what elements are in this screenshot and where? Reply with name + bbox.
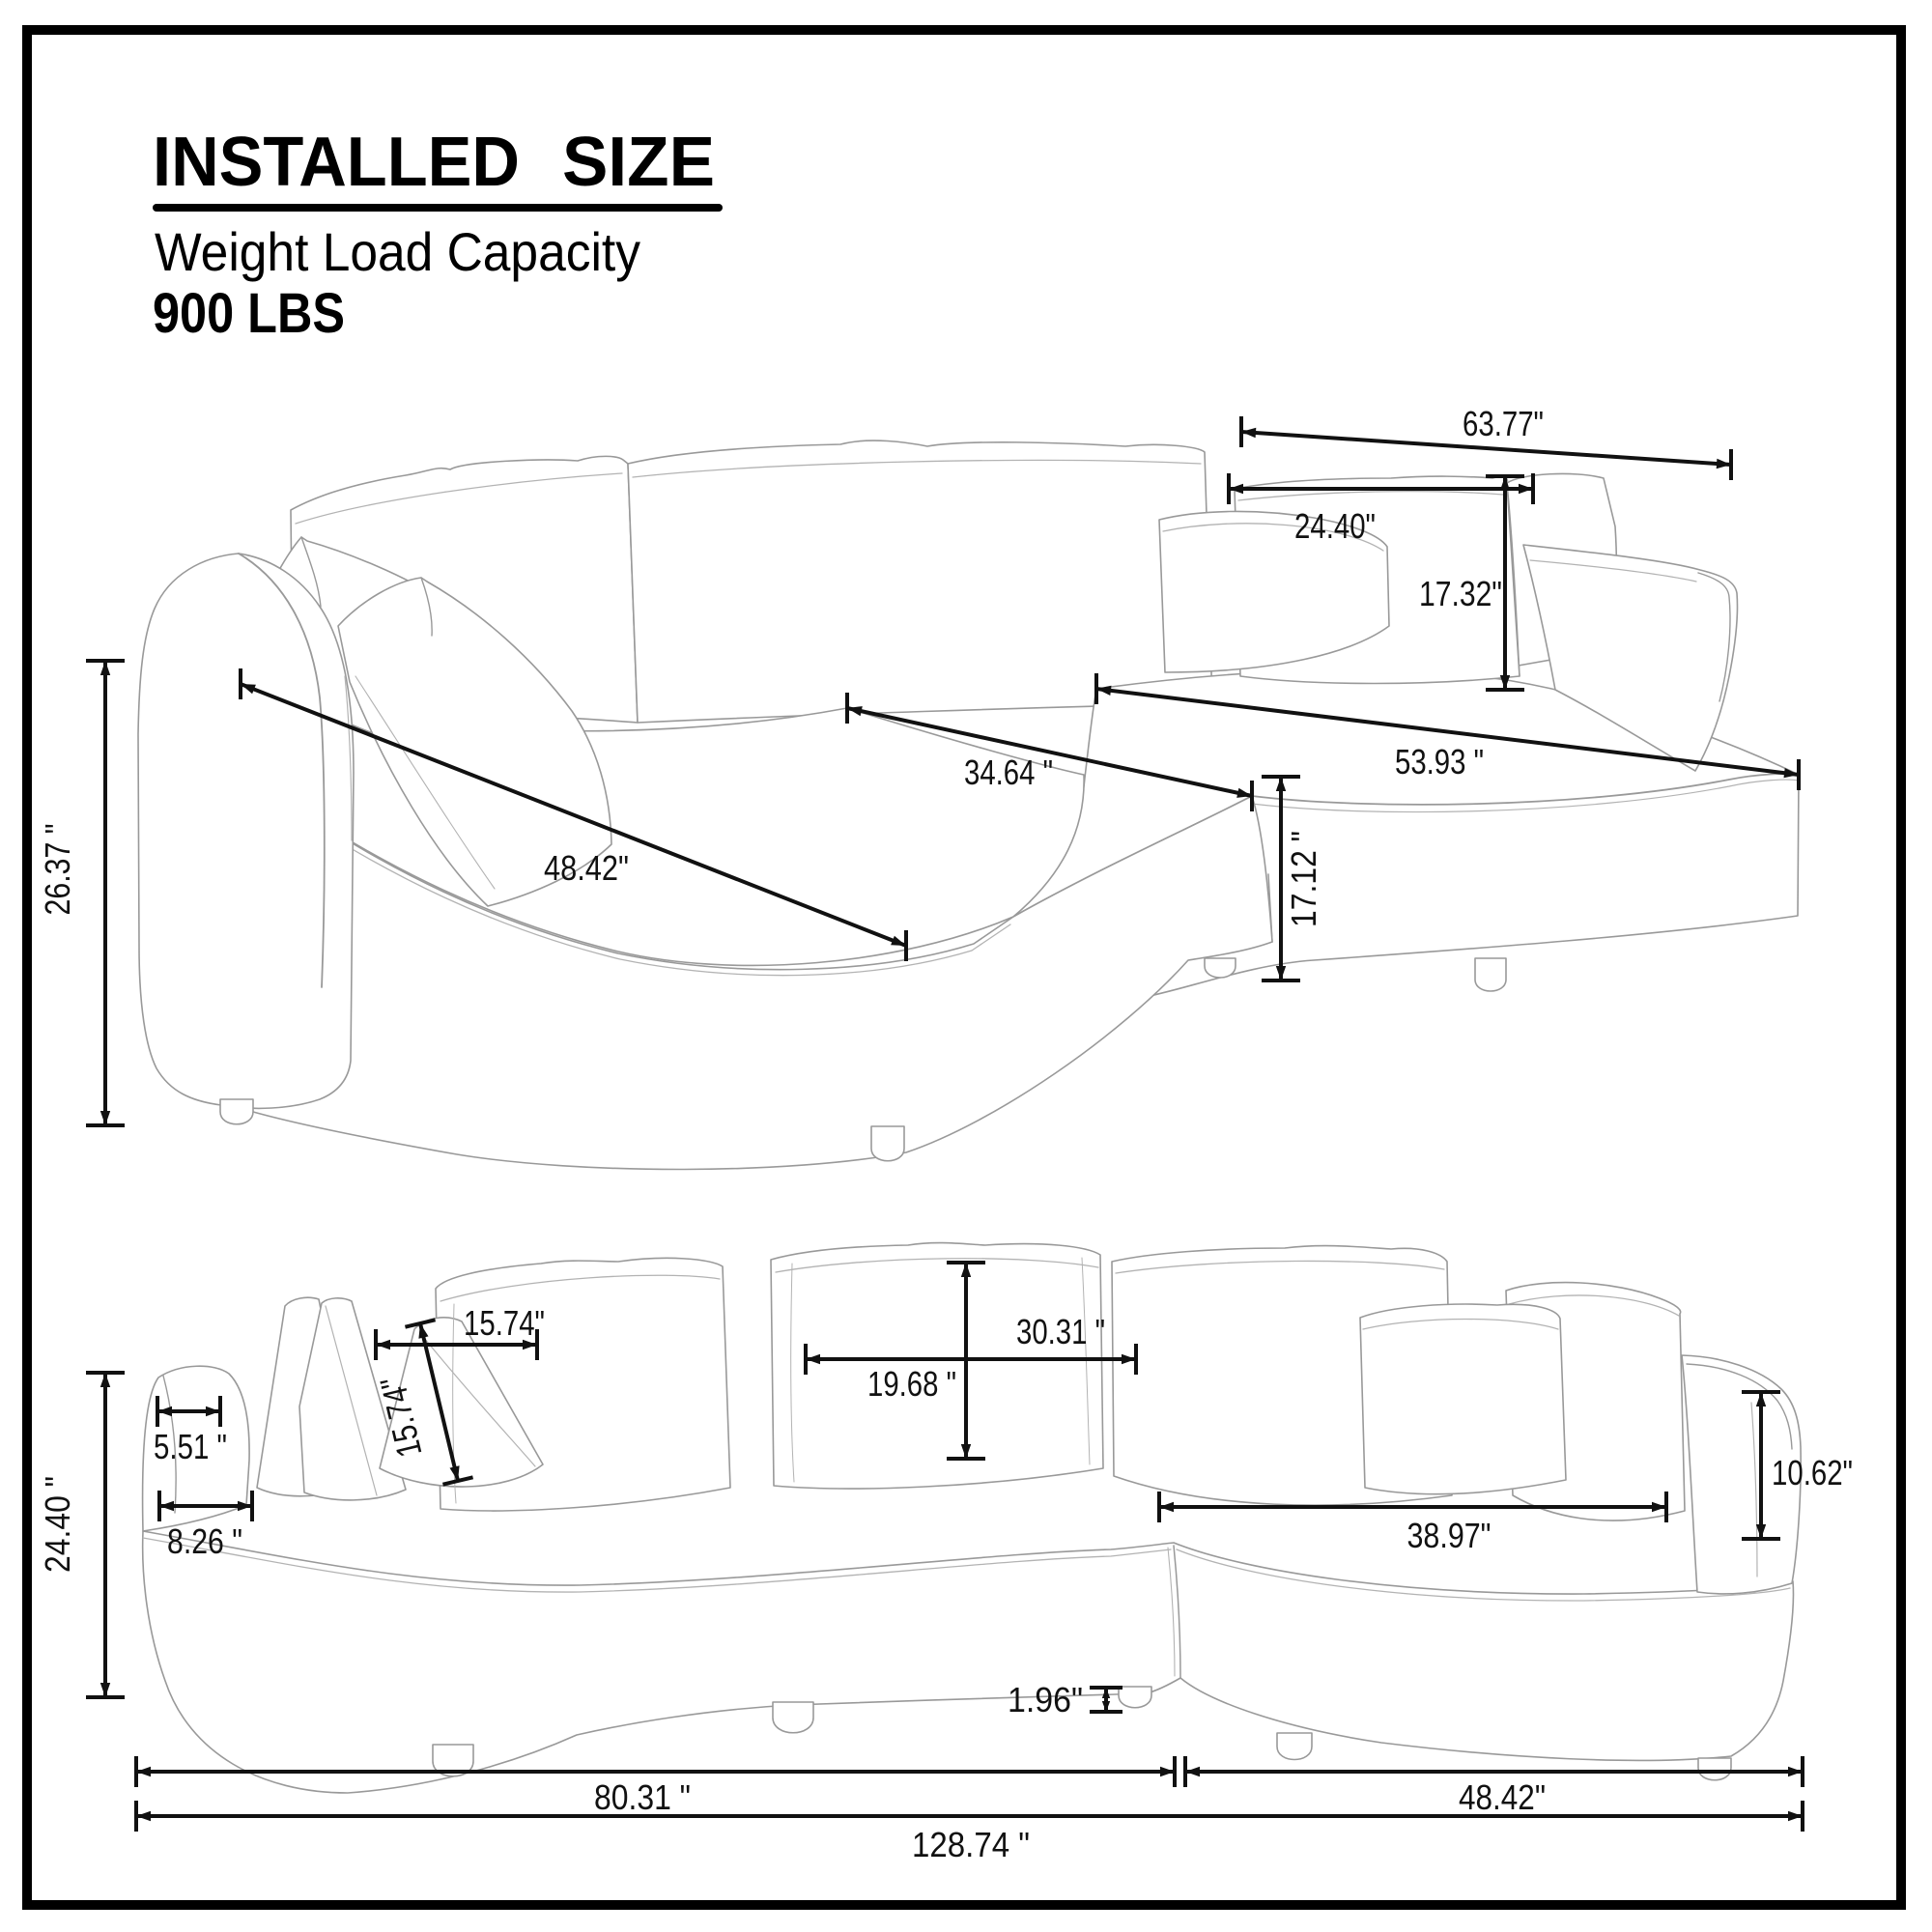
svg-text:30.31 ": 30.31 " <box>1016 1312 1105 1351</box>
svg-text:15.74": 15.74" <box>464 1303 545 1343</box>
svg-text:17.32": 17.32" <box>1419 574 1502 613</box>
svg-text:34.64 ": 34.64 " <box>964 753 1053 792</box>
svg-text:5.51 ": 5.51 " <box>154 1427 227 1466</box>
svg-text:8.26 ": 8.26 " <box>167 1521 242 1561</box>
svg-text:INSTALLED: INSTALLED <box>153 124 520 201</box>
svg-text:48.42": 48.42" <box>1459 1777 1546 1817</box>
svg-text:19.68 ": 19.68 " <box>867 1364 956 1404</box>
svg-text:63.77": 63.77" <box>1463 404 1544 443</box>
svg-text:24.40": 24.40" <box>1294 506 1376 546</box>
svg-text:10.62": 10.62" <box>1772 1453 1853 1492</box>
svg-text:17.12 ": 17.12 " <box>1284 831 1323 927</box>
svg-text:38.97": 38.97" <box>1407 1516 1492 1555</box>
svg-text:Weight Load Capacity: Weight Load Capacity <box>155 221 640 282</box>
svg-text:80.31 ": 80.31 " <box>594 1777 691 1817</box>
svg-text:24.40 ": 24.40 " <box>38 1476 77 1573</box>
svg-text:128.74 ": 128.74 " <box>912 1825 1030 1864</box>
svg-text:900 LBS: 900 LBS <box>153 282 345 345</box>
svg-text:48.42": 48.42" <box>544 848 629 888</box>
svg-text:53.93 ": 53.93 " <box>1395 742 1484 781</box>
svg-text:SIZE: SIZE <box>562 124 715 201</box>
svg-text:1.96": 1.96" <box>1008 1680 1083 1719</box>
svg-text:26.37 ": 26.37 " <box>38 824 77 916</box>
